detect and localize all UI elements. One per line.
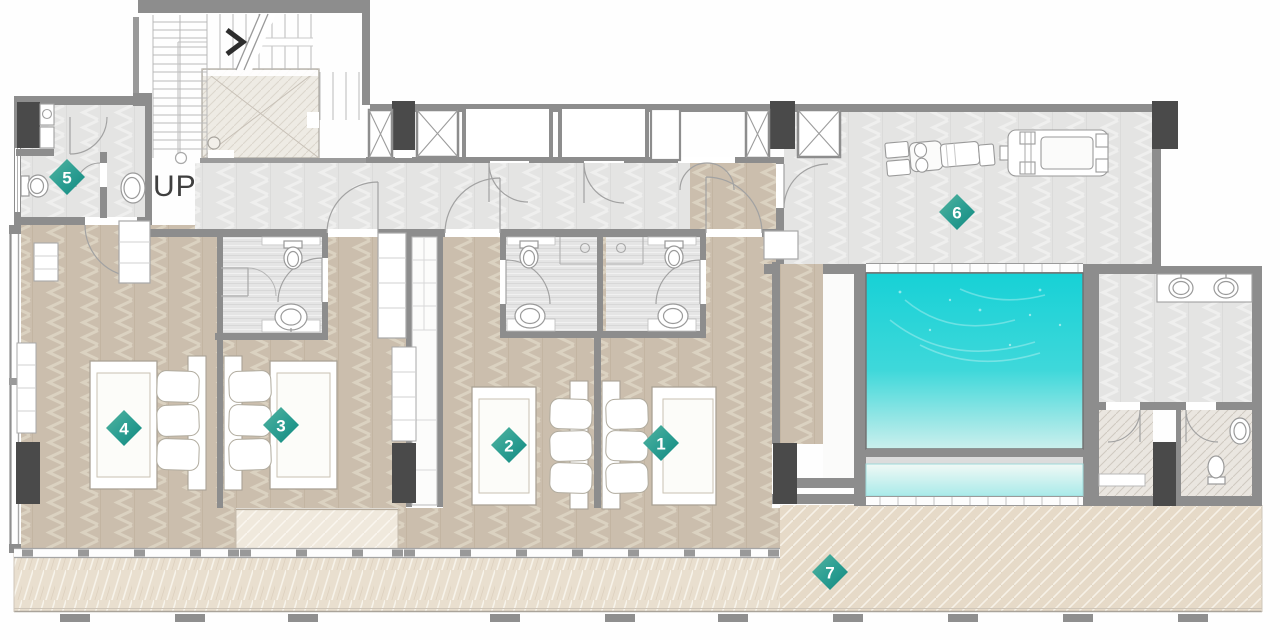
svg-text:6: 6: [952, 204, 961, 223]
svg-text:5: 5: [62, 169, 71, 188]
svg-text:3: 3: [276, 417, 285, 436]
svg-text:2: 2: [504, 437, 513, 456]
svg-text:7: 7: [825, 564, 834, 583]
svg-text:UP: UP: [153, 170, 197, 203]
svg-text:4: 4: [119, 420, 129, 439]
svg-text:1: 1: [656, 435, 665, 454]
